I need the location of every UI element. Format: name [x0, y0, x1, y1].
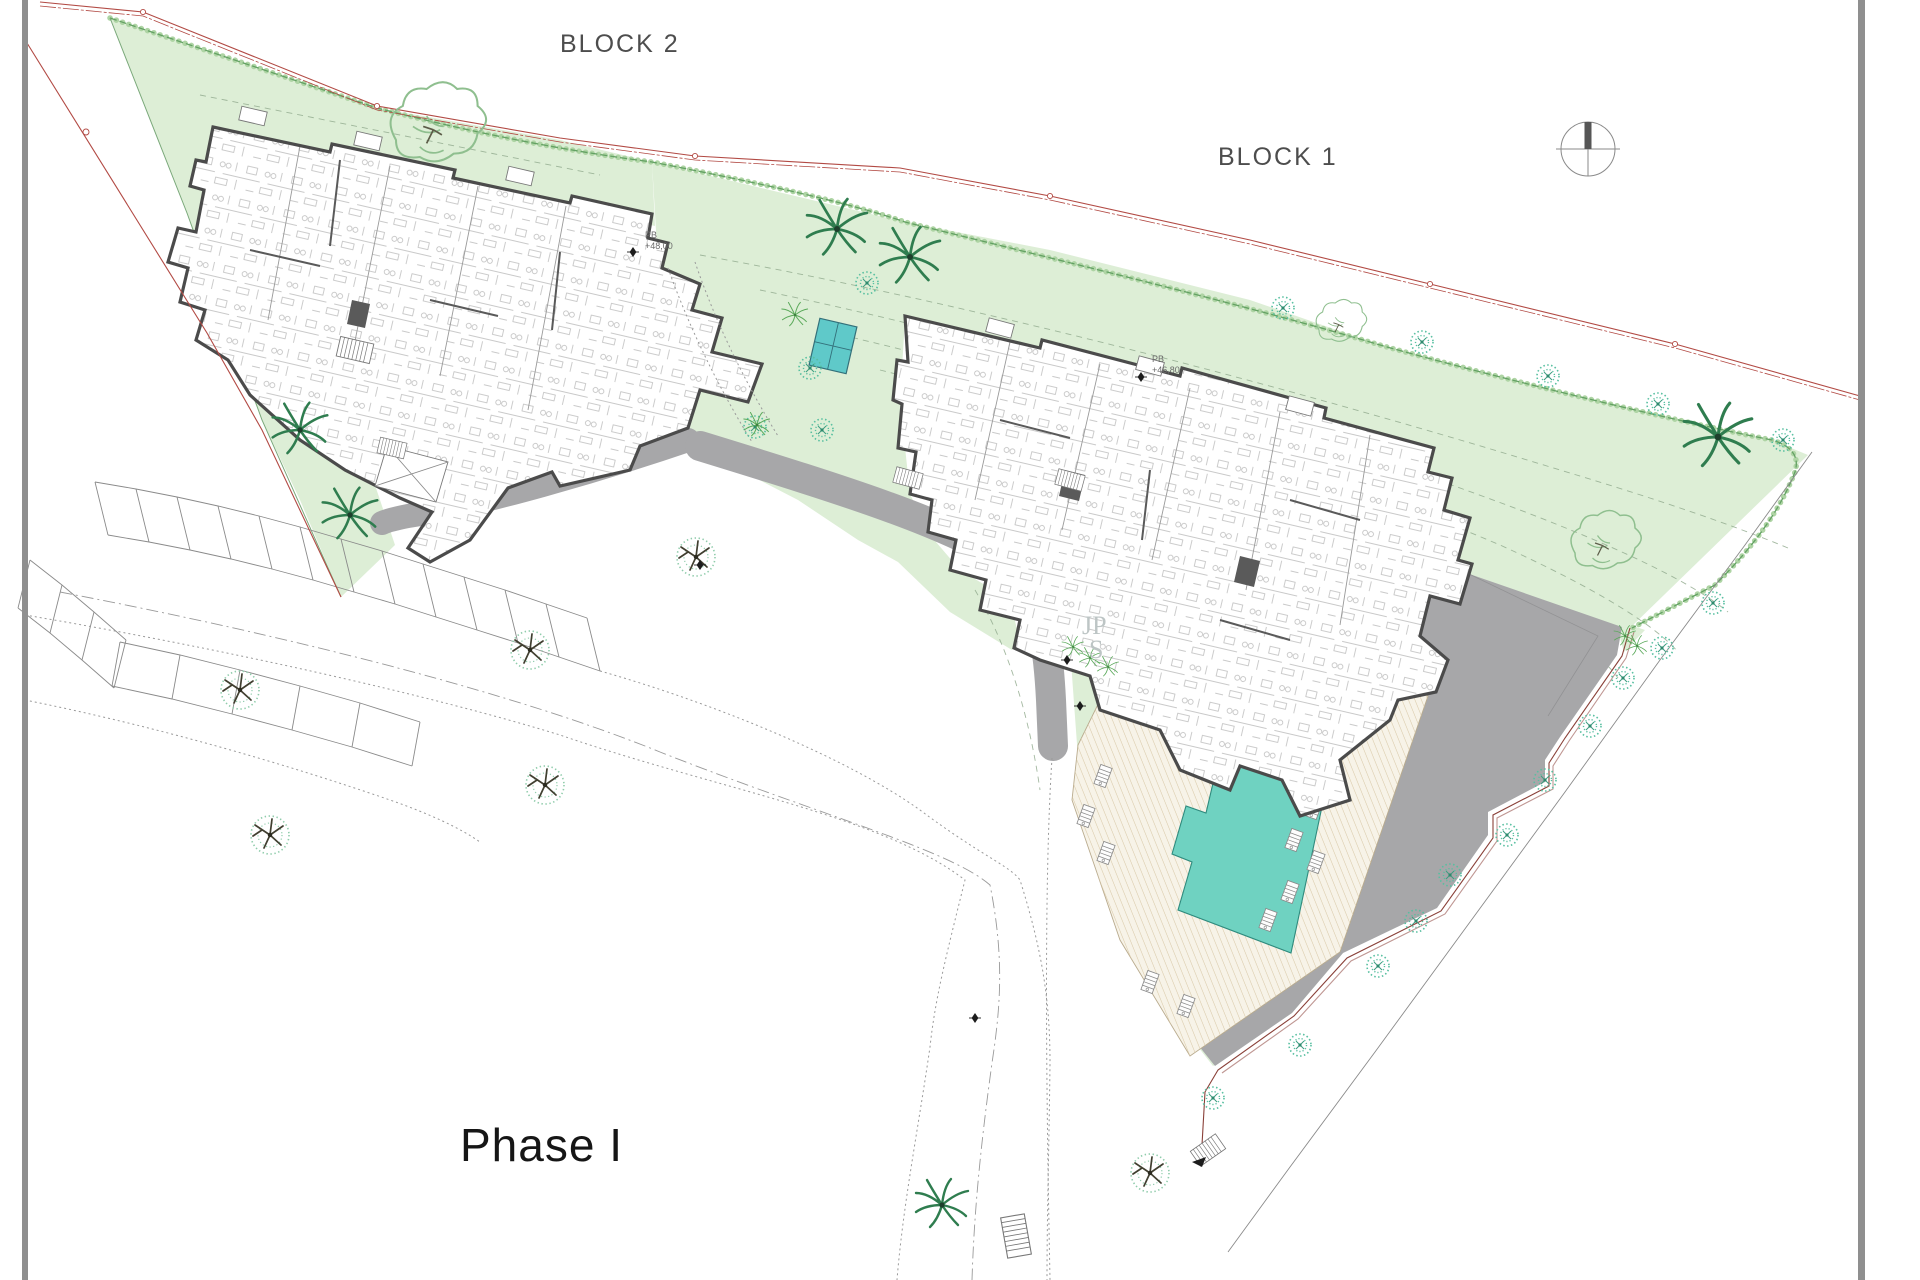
north-compass-icon — [1556, 122, 1620, 176]
round-tree-icon — [1702, 592, 1724, 614]
palm-tree-icon — [916, 1179, 968, 1227]
parking-row-left — [18, 560, 126, 688]
block2-label: BLOCK 2 — [560, 30, 680, 58]
round-tree-icon — [1651, 637, 1673, 659]
svg-text:S: S — [1089, 635, 1103, 664]
road-edge-outer — [25, 615, 965, 1280]
road-edge-inner — [600, 671, 1050, 1280]
round-tree-icon — [1289, 1034, 1311, 1056]
branched-tree-icon — [221, 671, 259, 709]
round-tree-icon — [1612, 667, 1634, 689]
round-tree-icon — [1367, 955, 1389, 977]
road-centerline — [60, 592, 1000, 1280]
block1-label: BLOCK 1 — [1218, 143, 1338, 171]
round-tree-icon — [1579, 715, 1601, 737]
svg-text:+46,80: +46,80 — [1152, 365, 1180, 375]
branched-tree-icon — [1131, 1154, 1169, 1192]
svg-text:PB: PB — [645, 230, 657, 240]
svg-text:+48,00: +48,00 — [645, 241, 673, 251]
site-plan-drawing: BLOCK 2 BLOCK 1 Phase I PB +48,00 PB +46… — [0, 0, 1920, 1280]
branched-tree-icon — [251, 816, 289, 854]
site-plan-sheet: BLOCK 2 BLOCK 1 Phase I PB +48,00 PB +46… — [0, 0, 1920, 1280]
round-tree-icon — [1202, 1087, 1224, 1109]
parking-row-outer — [112, 642, 420, 766]
svg-text:PB: PB — [1152, 354, 1164, 364]
path-edge-right-of-lawn — [1047, 758, 1053, 1280]
round-tree-icon — [1537, 365, 1559, 387]
stairs-icon — [1001, 1214, 1032, 1258]
level-marker-icon — [969, 1013, 981, 1023]
branched-tree-icon — [677, 538, 715, 576]
round-tree-icon — [1411, 331, 1433, 353]
phase-label: Phase I — [460, 1119, 623, 1171]
sheet-edge-left — [22, 0, 28, 1280]
sheet-edge-right — [1858, 0, 1865, 1280]
branched-tree-icon — [526, 766, 564, 804]
round-tree-icon — [1496, 824, 1518, 846]
